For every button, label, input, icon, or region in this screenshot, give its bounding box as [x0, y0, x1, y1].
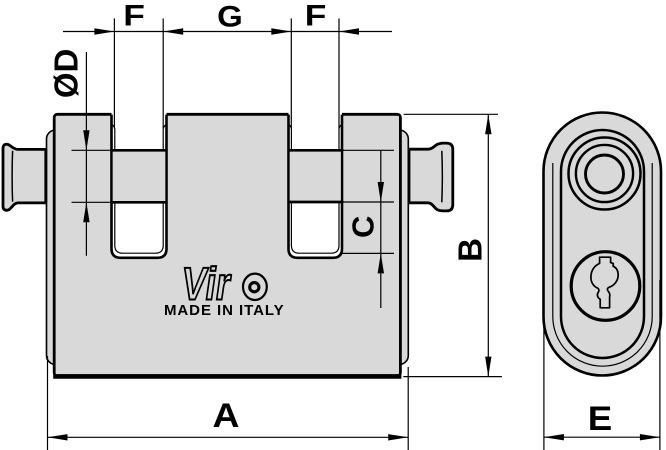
svg-text:F: F — [123, 0, 145, 32]
svg-text:E: E — [588, 400, 612, 437]
svg-text:A: A — [212, 396, 239, 434]
svg-text:G: G — [217, 0, 243, 33]
svg-text:F: F — [305, 0, 327, 32]
svg-text:ØD: ØD — [48, 49, 85, 99]
svg-text:B: B — [452, 238, 489, 262]
svg-text:MADE IN ITALY: MADE IN ITALY — [164, 302, 285, 319]
svg-text:C: C — [345, 216, 380, 238]
